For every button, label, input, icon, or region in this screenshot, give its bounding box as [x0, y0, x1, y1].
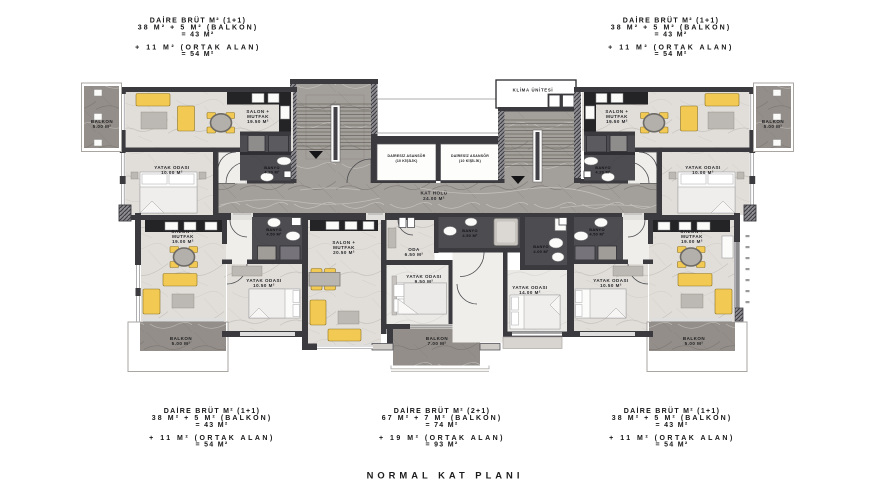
svg-text:= 54 M²: = 54 M² — [655, 442, 688, 449]
svg-text:= 43 M²: = 43 M² — [654, 31, 687, 38]
svg-text:19.00 M²: 19.00 M² — [681, 239, 703, 244]
svg-text:= 43 M²: = 43 M² — [195, 422, 228, 429]
svg-text:DAİRE BRÜT M² (1+1): DAİRE BRÜT M² (1+1) — [623, 16, 719, 25]
svg-text:= 54 M²: = 54 M² — [181, 51, 214, 58]
svg-text:4.20 M²: 4.20 M² — [264, 170, 280, 175]
svg-text:5.00 M²: 5.00 M² — [172, 341, 191, 346]
svg-text:4.50 M²: 4.50 M² — [462, 233, 478, 238]
svg-text:(10 KİŞİLİK): (10 KİŞİLİK) — [395, 159, 417, 163]
svg-text:5.00 M²: 5.00 M² — [93, 124, 112, 129]
svg-text:19.00 M²: 19.00 M² — [172, 239, 194, 244]
svg-text:= 93 M²: = 93 M² — [425, 442, 458, 449]
svg-text:5.00 M²: 5.00 M² — [685, 341, 704, 346]
svg-text:= 54 M²: = 54 M² — [195, 442, 228, 449]
svg-text:4.00 M²: 4.00 M² — [533, 249, 549, 254]
svg-text:24.00 M²: 24.00 M² — [423, 196, 445, 201]
svg-text:10.50 M²: 10.50 M² — [600, 283, 622, 288]
svg-text:5.00 M²: 5.00 M² — [764, 124, 783, 129]
svg-text:4.50 M²: 4.50 M² — [266, 232, 282, 237]
svg-text:10.50 M²: 10.50 M² — [253, 283, 275, 288]
svg-text:19.50 M²: 19.50 M² — [247, 119, 269, 124]
svg-text:DAİRE BRÜT M² (1+1): DAİRE BRÜT M² (1+1) — [164, 406, 260, 415]
svg-text:10.00 M²: 10.00 M² — [692, 170, 714, 175]
svg-text:20.50 M²: 20.50 M² — [333, 250, 355, 255]
svg-text:DAİRE BRÜT M² (1+1): DAİRE BRÜT M² (1+1) — [150, 16, 246, 25]
svg-text:(10 KİŞİLİK): (10 KİŞİLİK) — [459, 159, 481, 163]
svg-text:= 43 M²: = 43 M² — [181, 31, 214, 38]
svg-text:6.50 M²: 6.50 M² — [405, 252, 424, 257]
svg-text:4.20 M²: 4.20 M² — [595, 170, 611, 175]
svg-text:DAİRESİZ ASANSÖR: DAİRESİZ ASANSÖR — [451, 154, 489, 158]
svg-text:= 43 M²: = 43 M² — [655, 422, 688, 429]
svg-text:10.00 M²: 10.00 M² — [161, 170, 183, 175]
svg-text:14.00 M²: 14.00 M² — [519, 290, 541, 295]
svg-text:NORMAL KAT PLANI: NORMAL KAT PLANI — [367, 470, 524, 481]
svg-text:DAİRE BRÜT M² (1+1): DAİRE BRÜT M² (1+1) — [624, 406, 720, 415]
svg-text:7.00 M²: 7.00 M² — [428, 341, 447, 346]
svg-text:KLİMA ÜNİTESİ: KLİMA ÜNİTESİ — [513, 88, 554, 93]
svg-text:DAİRE BRÜT M² (2+1): DAİRE BRÜT M² (2+1) — [394, 406, 490, 415]
svg-text:= 54 M²: = 54 M² — [654, 51, 687, 58]
svg-text:9.50 M²: 9.50 M² — [415, 279, 434, 284]
svg-text:= 74 M²: = 74 M² — [425, 422, 458, 429]
svg-text:DAİRESİZ ASANSÖR: DAİRESİZ ASANSÖR — [388, 154, 426, 158]
svg-text:19.50 M²: 19.50 M² — [606, 119, 628, 124]
svg-text:4.50 M²: 4.50 M² — [589, 232, 605, 237]
